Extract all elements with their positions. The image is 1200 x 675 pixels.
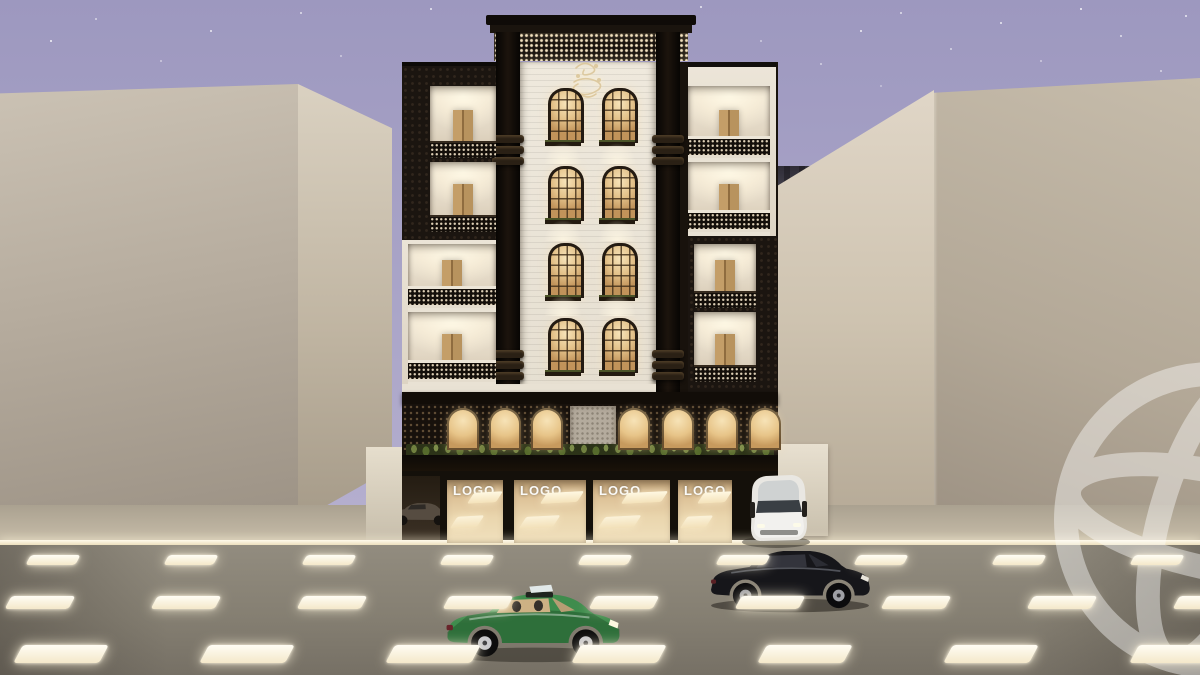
- pilaster-ring: [492, 146, 524, 154]
- glass-reflection: [518, 515, 560, 529]
- balcony-door: [715, 334, 735, 368]
- wall-light-cone: [540, 288, 586, 316]
- balcony-railing: [694, 291, 756, 308]
- globe-watermark: [1020, 352, 1200, 675]
- balcony: [694, 244, 756, 308]
- road-dash: [443, 596, 514, 609]
- road-dash: [1129, 645, 1200, 663]
- road-dash: [715, 555, 770, 565]
- storefront-bay: LOGO: [514, 480, 586, 543]
- road-dash: [1027, 596, 1098, 609]
- balcony-railing: [430, 141, 496, 158]
- glass-reflection: [621, 491, 668, 504]
- road-dash: [571, 645, 667, 663]
- crown-cornice: [486, 15, 696, 25]
- balcony-railing: [430, 215, 496, 232]
- arcade-arch: [662, 408, 694, 450]
- arcade-arch: [531, 408, 563, 450]
- road-dash: [163, 555, 218, 565]
- balcony-door: [453, 110, 473, 144]
- road-dash: [853, 555, 908, 565]
- arched-window: [548, 88, 584, 143]
- balcony: [430, 86, 496, 158]
- side-wall-left: [366, 447, 402, 545]
- road-dash: [297, 596, 368, 609]
- balcony-railing: [408, 286, 496, 308]
- balcony-railing: [694, 365, 756, 382]
- balcony-door: [715, 260, 735, 294]
- pilaster-ring: [652, 372, 684, 380]
- road-dash: [735, 596, 806, 609]
- road-dash: [577, 555, 632, 565]
- balcony: [694, 312, 756, 382]
- balcony: [408, 244, 496, 312]
- road-dash: [991, 555, 1046, 565]
- storefront-beam: [402, 455, 778, 471]
- road-dash: [385, 645, 481, 663]
- driveway-opening: [402, 476, 440, 543]
- pilaster-ring: [652, 146, 684, 154]
- road-dash: [5, 596, 76, 609]
- storefront-bay: LOGO: [593, 480, 670, 543]
- arched-window: [602, 318, 638, 373]
- arcade-arch: [489, 408, 521, 450]
- wall-light-cone: [540, 213, 586, 241]
- balcony-railing: [688, 136, 770, 158]
- road-dash: [151, 596, 222, 609]
- road-dash: [757, 645, 853, 663]
- pilaster-ring: [492, 350, 524, 358]
- balcony-railing: [688, 210, 770, 232]
- arcade-arch: [618, 408, 650, 450]
- architectural-render: LOGOLOGOLOGOLOGO: [0, 0, 1200, 675]
- road-dash: [301, 555, 356, 565]
- road-dash: [943, 645, 1039, 663]
- pilaster-ring: [652, 157, 684, 165]
- pilaster-ring: [492, 372, 524, 380]
- pilaster-ring: [652, 135, 684, 143]
- star-field: [0, 0, 2, 2]
- left-neighbor-building-front: [0, 84, 298, 552]
- road-dash: [1129, 555, 1184, 565]
- road-dash: [13, 645, 109, 663]
- window-sill-planter: [599, 370, 635, 376]
- balcony-door: [453, 184, 473, 218]
- window-sill-planter: [545, 370, 581, 376]
- glass-reflection: [598, 515, 642, 529]
- balcony: [408, 312, 496, 386]
- road-dash: [25, 555, 80, 565]
- wall-light-cone: [594, 136, 640, 164]
- road-dash: [589, 596, 660, 609]
- parked-grey-car: [402, 490, 440, 536]
- balcony: [688, 86, 770, 162]
- glass-reflection: [449, 515, 483, 528]
- pilaster-ring: [652, 361, 684, 369]
- road-dash: [199, 645, 295, 663]
- glass-reflection: [540, 491, 584, 504]
- mezzanine-cornice: [402, 392, 778, 404]
- wall-light-cone: [594, 213, 640, 241]
- glass-reflection: [680, 515, 713, 528]
- arcade-arch: [749, 408, 781, 450]
- wall-light-cone: [540, 136, 586, 164]
- balcony: [430, 162, 496, 232]
- balcony-railing: [408, 360, 496, 382]
- road-dash: [881, 596, 952, 609]
- storefront-bay: LOGO: [678, 480, 732, 543]
- arcade-arch: [447, 408, 479, 450]
- pilaster-ring: [652, 350, 684, 358]
- pilaster-ring: [492, 361, 524, 369]
- pilaster-ring: [492, 157, 524, 165]
- wall-light-cone: [594, 288, 640, 316]
- arched-window: [602, 88, 638, 143]
- road-dash: [439, 555, 494, 565]
- storefront-bay: LOGO: [447, 480, 503, 543]
- pilaster-ring: [492, 135, 524, 143]
- balcony: [688, 162, 770, 236]
- arched-window: [548, 318, 584, 373]
- arcade-arch: [706, 408, 738, 450]
